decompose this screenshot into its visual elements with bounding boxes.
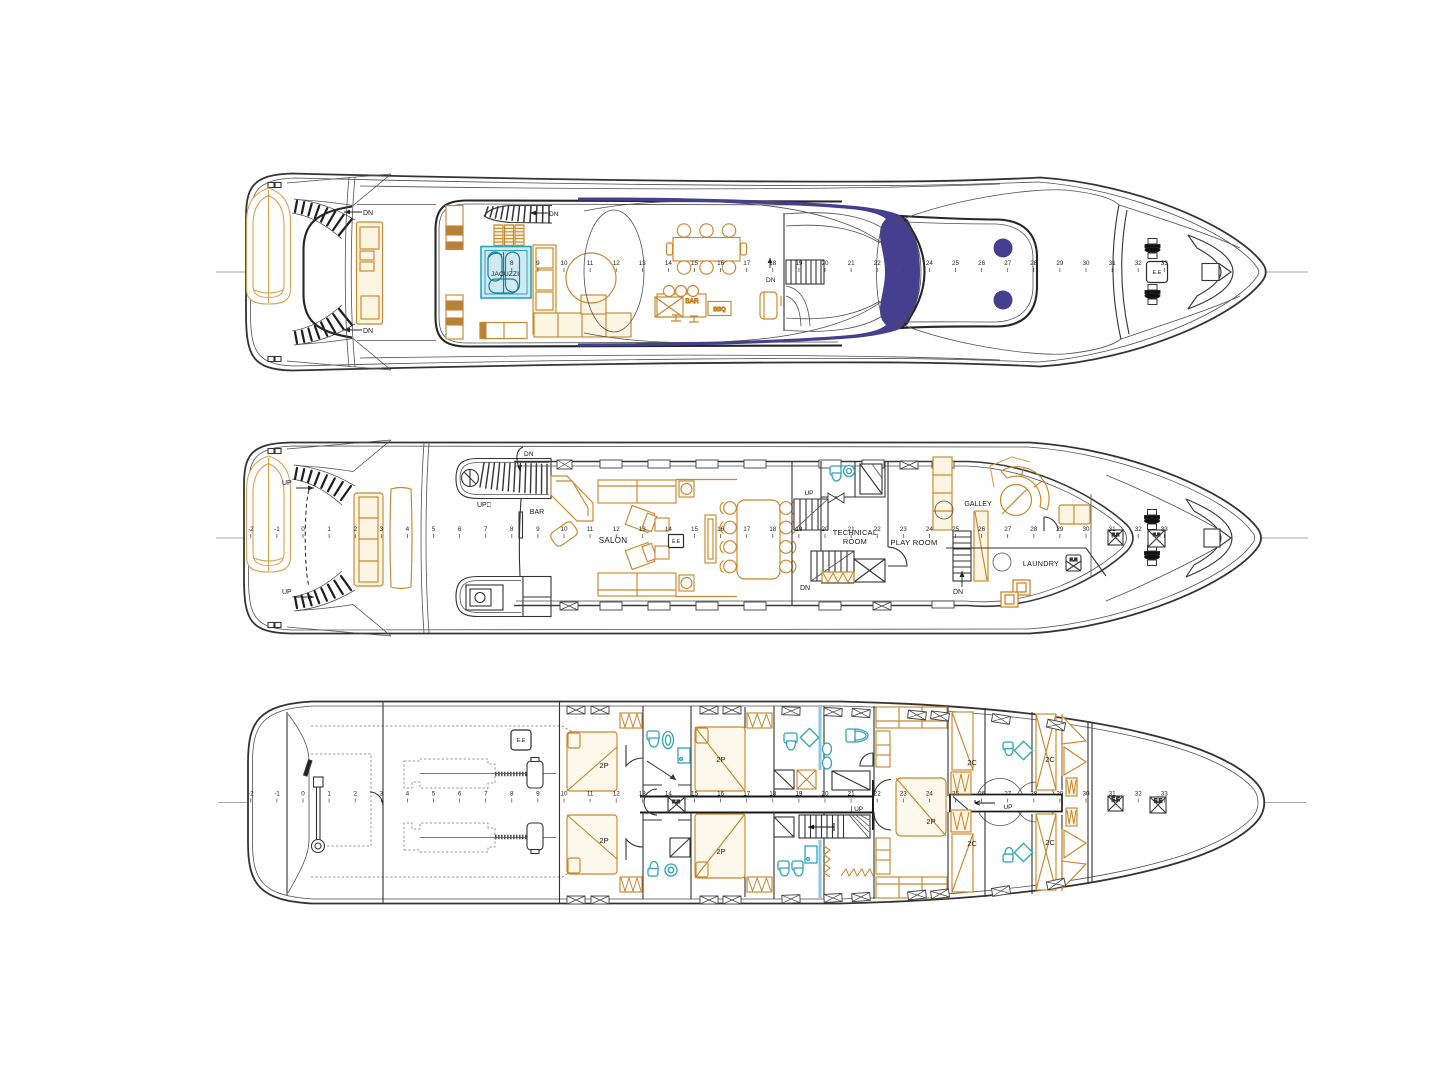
svg-text:8: 8 — [510, 526, 514, 533]
svg-text:23: 23 — [900, 791, 908, 798]
svg-text:25: 25 — [952, 260, 960, 267]
svg-text:10: 10 — [560, 791, 568, 798]
svg-text:-2: -2 — [248, 526, 254, 533]
svg-text:22: 22 — [874, 791, 882, 798]
svg-text:DN: DN — [363, 210, 373, 217]
svg-text:19: 19 — [795, 260, 803, 267]
svg-text:3: 3 — [380, 526, 384, 533]
svg-text:-1: -1 — [274, 526, 280, 533]
svg-text:2C: 2C — [1045, 755, 1055, 764]
svg-text:26: 26 — [978, 791, 986, 798]
svg-text:25: 25 — [952, 791, 960, 798]
svg-text:13: 13 — [639, 260, 647, 267]
svg-text:31: 31 — [1109, 791, 1117, 798]
svg-text:E.E: E.E — [672, 799, 680, 805]
svg-text:19: 19 — [795, 526, 803, 533]
svg-text:18: 18 — [769, 526, 777, 533]
svg-text:21: 21 — [848, 791, 856, 798]
svg-text:21: 21 — [848, 260, 856, 267]
svg-text:26: 26 — [978, 260, 986, 267]
svg-text:9: 9 — [536, 526, 540, 533]
svg-text:21: 21 — [848, 526, 856, 533]
svg-text:2P: 2P — [926, 817, 935, 826]
svg-text:3: 3 — [380, 791, 384, 798]
svg-text:33: 33 — [1161, 791, 1169, 798]
svg-text:BBQ: BBQ — [713, 307, 726, 313]
svg-text:BAR: BAR — [530, 509, 544, 516]
svg-text:10: 10 — [560, 260, 568, 267]
svg-text:2P: 2P — [716, 847, 725, 856]
svg-text:2C: 2C — [967, 839, 977, 848]
svg-text:-1: -1 — [274, 791, 280, 798]
svg-text:TECHNICAL: TECHNICAL — [833, 528, 878, 537]
svg-text:E.E: E.E — [517, 738, 526, 744]
svg-text:20: 20 — [821, 260, 829, 267]
svg-text:UP: UP — [804, 490, 813, 497]
svg-text:SALON: SALON — [599, 536, 628, 545]
svg-text:27: 27 — [1004, 260, 1012, 267]
svg-text:DN: DN — [953, 589, 963, 596]
svg-text:31: 31 — [1109, 526, 1117, 533]
svg-text:DN: DN — [800, 585, 810, 592]
svg-text:30: 30 — [1082, 791, 1090, 798]
svg-text:GALLEY: GALLEY — [964, 501, 992, 508]
svg-text:29: 29 — [1056, 526, 1064, 533]
svg-text:E.E: E.E — [1070, 557, 1078, 563]
svg-text:UP⎕: UP⎕ — [477, 502, 491, 509]
svg-text:33: 33 — [1161, 526, 1169, 533]
svg-text:ROOM: ROOM — [843, 537, 867, 546]
svg-text:-2: -2 — [248, 791, 254, 798]
svg-text:12: 12 — [613, 791, 621, 798]
svg-text:12: 12 — [613, 260, 621, 267]
svg-text:22: 22 — [874, 526, 882, 533]
svg-text:E.E: E.E — [1154, 799, 1163, 805]
svg-text:4: 4 — [406, 791, 410, 798]
svg-text:2P: 2P — [716, 755, 725, 764]
svg-text:24: 24 — [926, 791, 934, 798]
svg-text:13: 13 — [639, 791, 647, 798]
svg-text:6: 6 — [458, 526, 462, 533]
svg-text:15: 15 — [691, 791, 699, 798]
svg-text:DN: DN — [524, 451, 534, 458]
svg-text:UP: UP — [282, 589, 292, 596]
svg-text:14: 14 — [665, 791, 673, 798]
svg-text:30: 30 — [1082, 260, 1090, 267]
svg-text:24: 24 — [926, 260, 934, 267]
svg-text:17: 17 — [743, 791, 751, 798]
svg-text:11: 11 — [587, 791, 594, 798]
svg-text:2P: 2P — [599, 836, 608, 845]
svg-text:16: 16 — [717, 526, 725, 533]
svg-text:2: 2 — [353, 526, 357, 533]
svg-text:30: 30 — [1082, 526, 1090, 533]
svg-text:5: 5 — [432, 791, 436, 798]
svg-text:1: 1 — [327, 526, 331, 533]
svg-text:UP: UP — [1003, 804, 1012, 811]
svg-text:29: 29 — [1056, 260, 1064, 267]
svg-text:0: 0 — [301, 526, 305, 533]
svg-text:11: 11 — [587, 526, 594, 533]
svg-text:33: 33 — [1161, 260, 1169, 267]
svg-text:1: 1 — [327, 791, 331, 798]
svg-text:19: 19 — [795, 791, 803, 798]
svg-text:8: 8 — [510, 260, 514, 267]
svg-text:28: 28 — [1030, 526, 1038, 533]
svg-text:DN: DN — [549, 211, 559, 218]
svg-text:E.E: E.E — [1111, 797, 1120, 803]
svg-text:DN: DN — [363, 328, 373, 335]
svg-text:25: 25 — [952, 526, 960, 533]
svg-text:18: 18 — [769, 791, 777, 798]
svg-text:2P: 2P — [599, 761, 608, 770]
svg-text:PLAY ROOM: PLAY ROOM — [890, 538, 937, 547]
svg-text:17: 17 — [743, 260, 751, 267]
svg-text:24: 24 — [926, 526, 934, 533]
svg-text:7: 7 — [484, 526, 488, 533]
svg-text:27: 27 — [1004, 526, 1012, 533]
svg-text:32: 32 — [1135, 791, 1143, 798]
svg-text:16: 16 — [717, 791, 725, 798]
svg-text:20: 20 — [821, 791, 829, 798]
svg-text:BAR: BAR — [685, 298, 699, 305]
svg-text:23: 23 — [900, 526, 908, 533]
svg-text:E.E: E.E — [1153, 270, 1162, 276]
svg-text:4: 4 — [406, 526, 410, 533]
svg-text:27: 27 — [1004, 791, 1012, 798]
svg-text:DN: DN — [766, 277, 776, 284]
svg-text:20: 20 — [821, 526, 829, 533]
svg-text:28: 28 — [1030, 791, 1038, 798]
svg-text:8: 8 — [510, 791, 514, 798]
svg-text:6: 6 — [458, 791, 462, 798]
svg-text:31: 31 — [1109, 260, 1117, 267]
svg-text:UP: UP — [282, 480, 292, 487]
svg-text:15: 15 — [691, 260, 699, 267]
svg-text:⌋ UP: ⌋ UP — [850, 806, 863, 813]
svg-text:32: 32 — [1135, 260, 1143, 267]
svg-text:28: 28 — [1030, 260, 1038, 267]
svg-text:JACUZZI: JACUZZI — [491, 271, 519, 278]
svg-text:32: 32 — [1135, 526, 1143, 533]
svg-text:18: 18 — [769, 260, 777, 267]
svg-text:13: 13 — [639, 526, 647, 533]
svg-text:29: 29 — [1056, 791, 1064, 798]
svg-text:0: 0 — [301, 791, 305, 798]
svg-text:14: 14 — [665, 260, 673, 267]
svg-text:2: 2 — [353, 791, 357, 798]
svg-text:17: 17 — [743, 526, 751, 533]
svg-text:15: 15 — [691, 526, 699, 533]
svg-text:14: 14 — [665, 526, 673, 533]
svg-text:10: 10 — [560, 526, 568, 533]
svg-text:11: 11 — [587, 260, 594, 267]
svg-text:E.E: E.E — [672, 539, 681, 545]
svg-text:E.E: E.E — [1153, 532, 1160, 537]
svg-text:26: 26 — [978, 526, 986, 533]
svg-text:2C: 2C — [967, 758, 977, 767]
svg-text:7: 7 — [484, 791, 488, 798]
svg-text:9: 9 — [536, 260, 540, 267]
svg-text:5: 5 — [432, 526, 436, 533]
svg-text:2C: 2C — [1045, 838, 1055, 847]
svg-text:22: 22 — [874, 260, 882, 267]
svg-text:16: 16 — [717, 260, 725, 267]
svg-text:LAUNDRY: LAUNDRY — [1023, 559, 1059, 568]
svg-text:9: 9 — [536, 791, 540, 798]
svg-text:12: 12 — [613, 526, 621, 533]
